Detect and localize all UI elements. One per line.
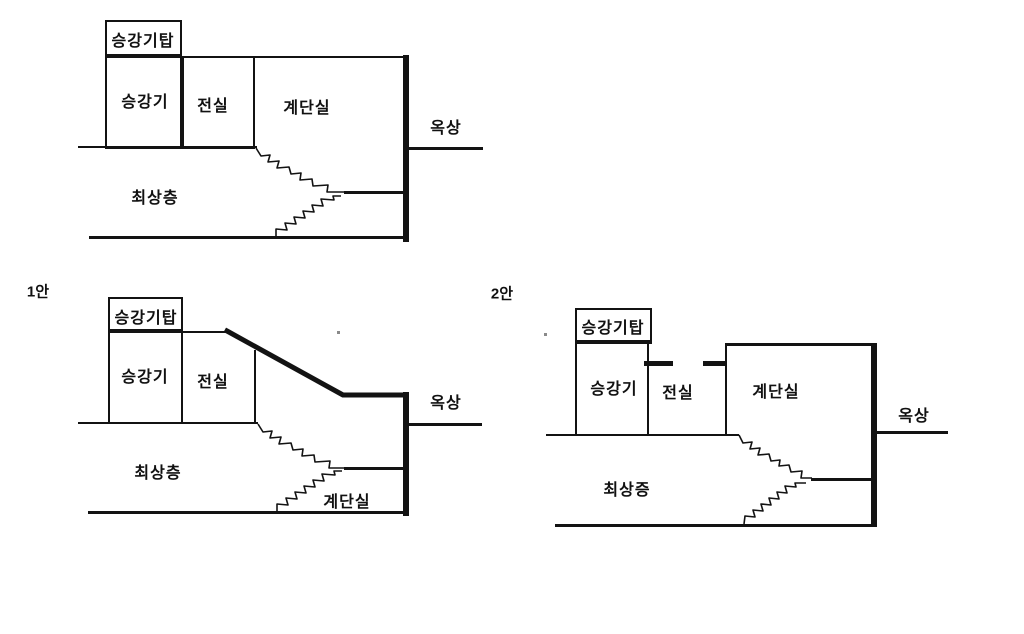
plan2-title: 2안 <box>491 283 513 304</box>
plan2-door-segment-right <box>703 361 727 366</box>
plan2-tower-label: 승강기탑 <box>582 314 645 338</box>
plan1-landing-line <box>344 467 404 470</box>
plan1-floor-line <box>78 422 258 424</box>
base-rooftop-line <box>407 147 483 150</box>
plan2-landing-line <box>811 478 871 481</box>
base-rooftop-label: 옥상 <box>430 114 461 138</box>
base-stairs-lower-flight <box>276 196 341 237</box>
base-landing-line <box>344 191 404 194</box>
plan2-bottom-line <box>555 524 871 527</box>
plan2-door-segment-left <box>644 361 673 366</box>
base-stairwell-top-line <box>255 56 404 58</box>
plan2-top-floor-label: 최상증 <box>603 476 650 500</box>
plan1-vestibule-top-line <box>183 331 229 333</box>
base-elevator-label: 승강기 <box>121 88 168 112</box>
plan2-stairwell-top-line <box>725 343 871 346</box>
plan1-title: 1안 <box>27 281 49 302</box>
plan1-vestibule-right-line <box>254 350 256 424</box>
plan1-rooftop-line <box>407 423 482 426</box>
plan2-rooftop-line <box>877 431 948 434</box>
plan1-vestibule-label: 전실 <box>197 368 228 392</box>
base-bottom-line <box>89 236 404 239</box>
section-diagram-canvas: 승강기탑 승강기 전실 계단실 옥상 최상층 1안 승강기탑 승강기 전실 옥상… <box>0 0 1024 634</box>
plan2-right-wall-thick <box>871 343 877 527</box>
plan1-right-wall-thick <box>403 392 409 516</box>
plan2-vestibule-label: 전실 <box>662 379 693 403</box>
plan1-elevator-label: 승강기 <box>121 363 168 387</box>
plan2-rooftop-label: 옥상 <box>898 402 929 426</box>
scan-speck-2 <box>544 333 547 336</box>
plan2-stairwell-left-line <box>725 343 727 436</box>
plan2-elevator-label: 승강기 <box>590 375 637 399</box>
base-tower-label: 승강기탑 <box>112 27 175 51</box>
plan2-stairs-upper-flight <box>739 435 812 478</box>
plan1-stairs-upper-flight <box>258 424 348 468</box>
plan2-stairs-lower-flight <box>744 483 806 524</box>
plan1-top-floor-label: 최상층 <box>134 459 181 483</box>
base-stairwell-label: 계단실 <box>283 94 330 118</box>
base-stairs-upper-flight <box>256 148 346 192</box>
plan2-floor-line <box>546 434 739 436</box>
scan-speck-1 <box>337 331 340 334</box>
plan2-stairwell-label: 계단실 <box>752 378 799 402</box>
plan1-tower-label: 승강기탑 <box>115 304 178 328</box>
plan1-stairwell-label: 계단실 <box>323 488 370 512</box>
base-top-floor-label: 최상층 <box>131 184 178 208</box>
base-floor-line <box>78 146 257 148</box>
base-vestibule-label: 전실 <box>197 92 228 116</box>
plan1-rooftop-label: 옥상 <box>430 389 461 413</box>
